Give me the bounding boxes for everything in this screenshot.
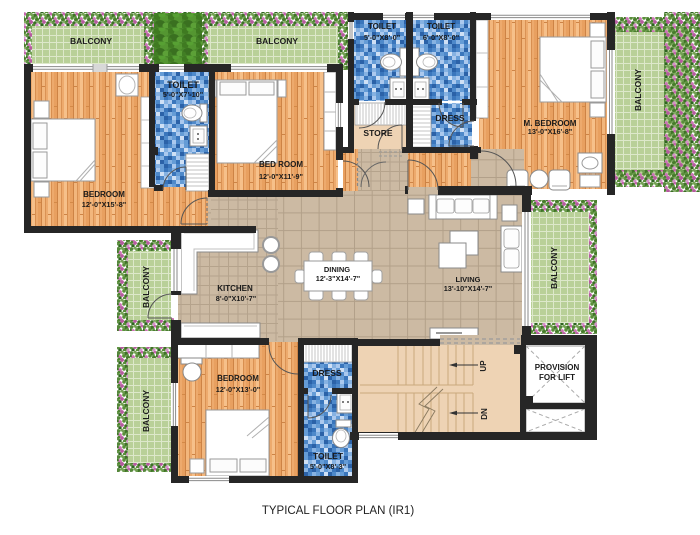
svg-text:LIVING: LIVING xyxy=(455,275,480,284)
svg-text:DRESS: DRESS xyxy=(312,368,342,378)
svg-text:BEDROOM: BEDROOM xyxy=(83,190,125,199)
svg-text:TOILET: TOILET xyxy=(427,22,455,31)
svg-text:KITCHEN: KITCHEN xyxy=(217,284,253,293)
svg-text:DRESS: DRESS xyxy=(435,113,465,123)
svg-text:12'-0"X11'-9": 12'-0"X11'-9" xyxy=(259,172,303,181)
svg-text:BALCONY: BALCONY xyxy=(70,36,112,46)
svg-text:BED ROOM: BED ROOM xyxy=(259,160,303,169)
svg-text:FOR LIFT: FOR LIFT xyxy=(539,373,575,382)
svg-text:BALCONY: BALCONY xyxy=(141,266,151,308)
svg-text:STORE: STORE xyxy=(363,128,392,138)
svg-text:BEDROOM: BEDROOM xyxy=(217,374,259,383)
svg-text:DINING: DINING xyxy=(324,265,350,274)
svg-text:5'-0"X8'-0": 5'-0"X8'-0" xyxy=(364,33,400,42)
svg-text:13'-0"X16'-8": 13'-0"X16'-8" xyxy=(528,127,572,136)
svg-text:12'-3"X14'-7": 12'-3"X14'-7" xyxy=(316,274,360,283)
svg-text:TOILET: TOILET xyxy=(313,451,344,461)
svg-text:6'-0"X8'-0": 6'-0"X8'-0" xyxy=(423,33,459,42)
svg-text:5'-0"X8'-3": 5'-0"X8'-3" xyxy=(310,462,346,471)
svg-text:12'-0"X15'-8": 12'-0"X15'-8" xyxy=(82,200,126,209)
svg-text:PROVISION: PROVISION xyxy=(535,363,580,372)
svg-text:TOILET: TOILET xyxy=(167,80,199,90)
svg-text:DN: DN xyxy=(480,408,489,420)
svg-text:BALCONY: BALCONY xyxy=(633,69,643,111)
svg-text:12'-0"X13'-0": 12'-0"X13'-0" xyxy=(216,385,260,394)
svg-text:5'-0"X7'-10": 5'-0"X7'-10" xyxy=(163,90,203,99)
svg-text:8'-0"X10'-7": 8'-0"X10'-7" xyxy=(216,294,256,303)
svg-text:BALCONY: BALCONY xyxy=(256,36,298,46)
svg-text:BALCONY: BALCONY xyxy=(141,390,151,432)
svg-text:13'-10"X14'-7": 13'-10"X14'-7" xyxy=(444,284,493,293)
svg-text:BALCONY: BALCONY xyxy=(549,247,559,289)
svg-text:TYPICAL FLOOR PLAN (IR1): TYPICAL FLOOR PLAN (IR1) xyxy=(262,505,414,517)
svg-text:UP: UP xyxy=(479,360,488,372)
svg-text:TOILET: TOILET xyxy=(368,22,396,31)
